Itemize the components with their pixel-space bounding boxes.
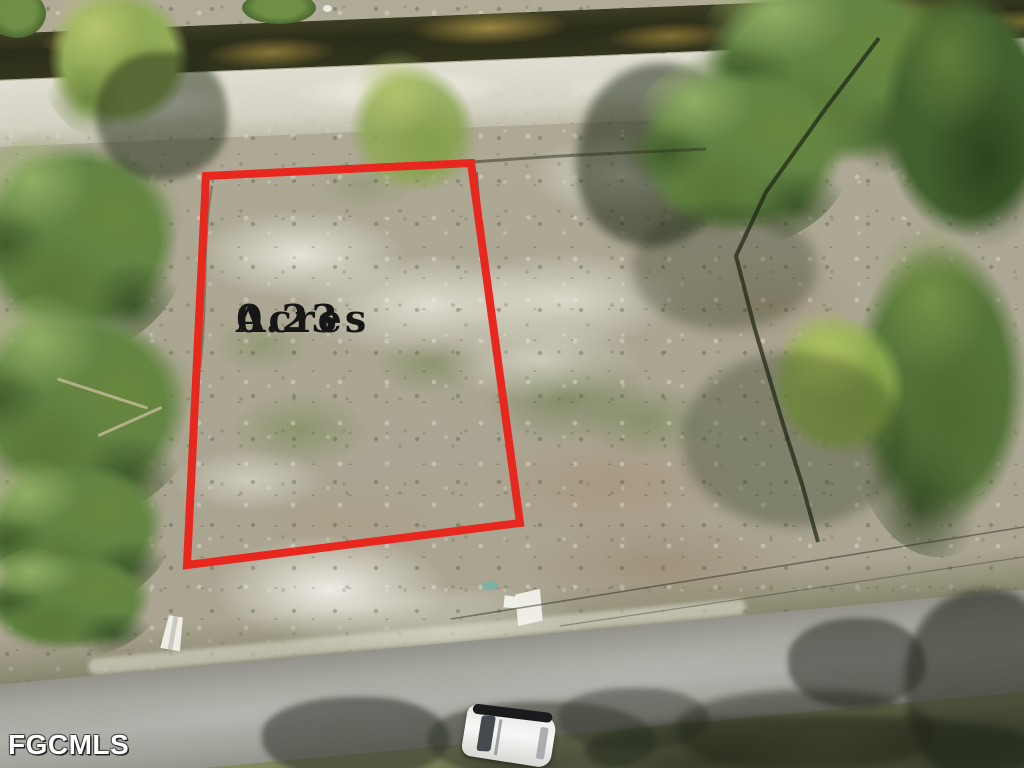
aerial-lot-photo: 0.23 Acres FGCMLS [0,0,1024,768]
debris [323,5,332,12]
lot-size-unit: Acres [236,303,369,334]
survey-marker [503,595,517,608]
tree-shadow [676,690,936,768]
tree-shadow [262,697,450,768]
tree-shadow [632,205,817,330]
tree-shadow [682,352,907,527]
mls-watermark: FGCMLS [8,729,129,761]
tree [336,44,488,214]
tree-shadow [96,52,228,180]
